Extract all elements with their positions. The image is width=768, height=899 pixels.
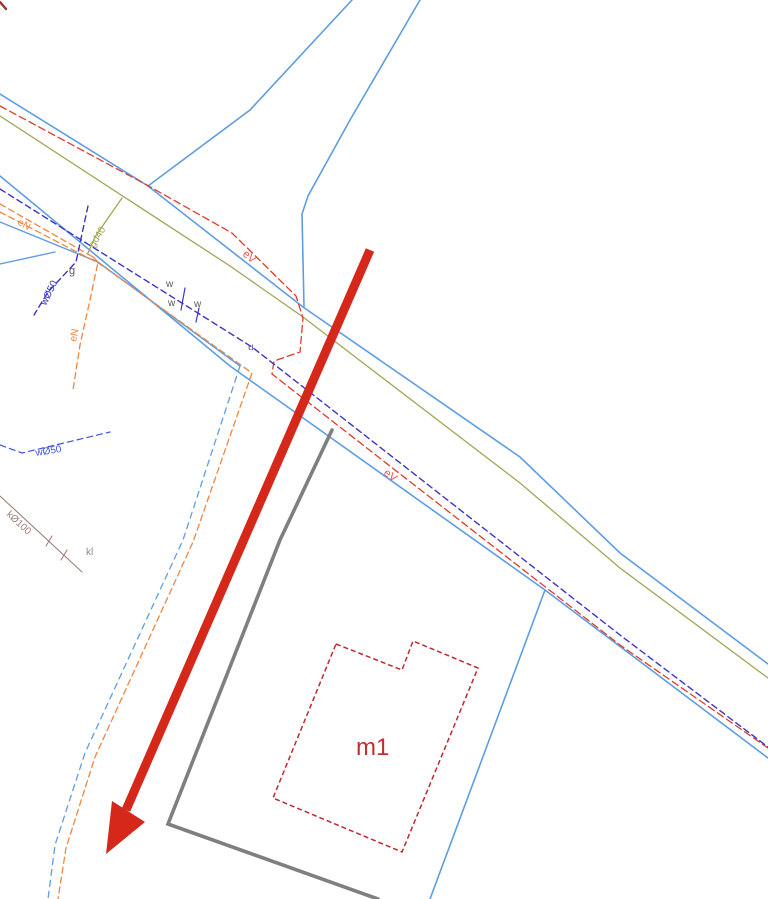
annotation-arrow-shaft [126,250,370,810]
electric-orange-stub [73,257,98,390]
parcel-boundary-east [430,590,545,899]
label-eN-pair: eN [16,217,33,233]
label-eN-stub: eN [68,328,81,343]
corner-red-mark [0,2,6,9]
map-view: eVeVgd40wØ50eNeNwwwguwØ50kØ100klm1 [0,0,768,899]
label-gd40: gd40 [87,225,108,250]
label-w-3: w [193,299,202,310]
water-tick-1 [181,288,185,310]
electric-cable-eV [0,106,768,748]
sewer-tick-2 [61,550,67,560]
label-u: u [248,342,254,353]
road-edge-south [0,176,768,758]
label-w-2: w [167,298,176,309]
label-eV-2: eV [381,467,400,485]
road-branch-left-edge [148,0,352,186]
fence-line-gray [168,430,378,899]
map-canvas[interactable]: eVeVgd40wØ50eNeNwwwguwØ50kØ100klm1 [0,0,768,899]
label-w-1: w [165,279,174,290]
electric-orange-line-b [0,212,252,899]
label-kl: kl [86,547,93,558]
sewer-tick-1 [46,536,52,546]
label-eV-1: eV [240,248,259,266]
parcel-wedge-west [0,252,55,264]
sewer-k100 [0,496,82,572]
label-g: g [69,265,75,277]
water-tick-2 [196,308,199,322]
branch-road-blue-edge [48,366,240,899]
label-m1: m1 [356,734,389,761]
gas-main-olive [0,116,768,678]
label-w50-branch: wØ50 [38,279,60,309]
label-w50-service: wØ50 [34,444,63,459]
